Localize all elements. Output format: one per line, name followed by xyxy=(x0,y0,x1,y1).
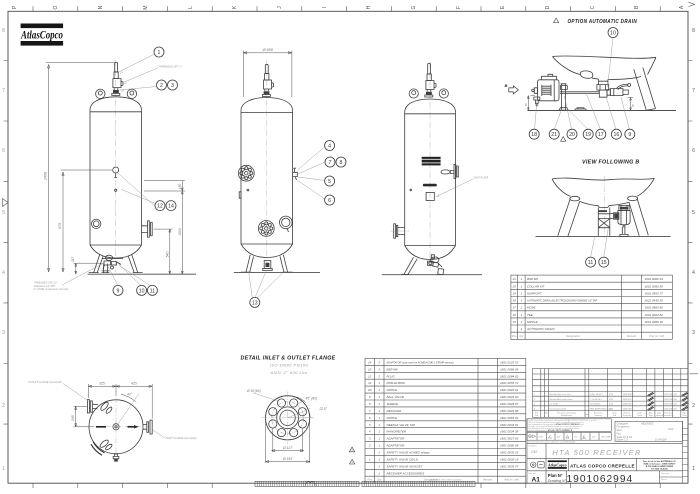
svg-text:Designation: Designation xyxy=(566,334,580,338)
svg-text:Format: Format xyxy=(529,472,536,475)
svg-text:1: 1 xyxy=(692,466,695,472)
svg-text:D: D xyxy=(545,5,551,9)
svg-text:975: 975 xyxy=(58,223,62,229)
svg-text:5: 5 xyxy=(692,210,695,216)
svg-text:4: 4 xyxy=(2,270,5,276)
svg-text:Tel:0320.10.46.46: Tel:0320.10.46.46 xyxy=(651,467,668,470)
svg-text:Approval Dte: Approval Dte xyxy=(661,414,674,417)
svg-text:5: 5 xyxy=(328,179,331,185)
svg-text:DETAIL INLET & OUTLET FLAN: DETAIL INLET & OUTLET FLANGE xyxy=(240,355,335,361)
svg-text:1910: 1910 xyxy=(668,429,674,431)
svg-text:L: L xyxy=(188,6,194,9)
svg-text:5: 5 xyxy=(2,210,5,216)
svg-text:20: 20 xyxy=(569,132,575,138)
svg-text:Remark: Remark xyxy=(627,334,637,338)
svg-text:45° (8X): 45° (8X) xyxy=(306,396,318,400)
svg-text:1601 0029 67: 1601 0029 67 xyxy=(500,402,519,406)
svg-text:1601 0635 18: 1601 0635 18 xyxy=(500,451,519,455)
svg-text:1601 0033 91: 1601 0033 91 xyxy=(500,423,519,427)
svg-text:325: 325 xyxy=(99,381,105,385)
svg-text:Ø 165: Ø 165 xyxy=(282,457,292,461)
svg-text:Tested by: Tested by xyxy=(623,414,633,417)
svg-text:OUTLET FLANGE (see detail): OUTLET FLANGE (see detail) xyxy=(28,381,62,384)
svg-text:Drawn C.D: Drawn C.D xyxy=(617,440,629,442)
svg-text:Sheet: Sheet xyxy=(661,478,667,481)
svg-text:F: F xyxy=(456,6,462,9)
svg-text:Spec: Spec xyxy=(617,430,623,432)
svg-text:Modification: Modification xyxy=(561,414,573,417)
svg-text:MANOMETER: MANOMETER xyxy=(387,430,407,434)
svg-text:BSP M8: BSP M8 xyxy=(527,277,538,281)
svg-text:13: 13 xyxy=(252,300,258,306)
svg-text:HTA 500 RECEIVER: HTA 500 RECEIVER xyxy=(552,448,641,457)
svg-text:ANSI 2" 600 Lbs: ANSI 2" 600 Lbs xyxy=(270,370,308,375)
svg-text:Mounted/Assembly drawn: Mounted/Assembly drawn xyxy=(550,398,574,401)
svg-text:Verfd on: Verfd on xyxy=(623,413,631,415)
svg-text:6: 6 xyxy=(328,198,331,204)
svg-text:SLEEVE: SLEEVE xyxy=(387,402,400,406)
svg-text:A1: A1 xyxy=(532,477,541,484)
svg-text:7: 7 xyxy=(329,160,332,166)
svg-text:1904 5417: 1904 5417 xyxy=(623,407,633,410)
svg-text:3: 3 xyxy=(171,83,174,89)
svg-text:1601 0029 82: 1601 0029 82 xyxy=(645,313,664,317)
svg-text:SAFETY VALVE ACMEG w/tags: SAFETY VALVE ACMEG w/tags xyxy=(387,451,431,455)
svg-text:1601 0855 77: 1601 0855 77 xyxy=(645,291,664,295)
svg-text:1601 0635 57: 1601 0635 57 xyxy=(500,464,519,468)
svg-text:1601 0066 36: 1601 0066 36 xyxy=(645,320,664,324)
svg-text:6: 6 xyxy=(2,148,5,154)
svg-text:AUTOMATIC DRAIN (ELECTRO)220/2: AUTOMATIC DRAIN (ELECTRO)220/240V-50/60H… xyxy=(526,299,598,303)
svg-text:for ACME compressors (see list: for ACME compressors (see list) xyxy=(34,288,69,291)
svg-text:1622 0439 35: 1622 0439 35 xyxy=(645,299,664,303)
svg-text:1601 0029 60: 1601 0029 60 xyxy=(500,395,519,399)
svg-text:2: 2 xyxy=(377,360,380,364)
svg-text:4: 4 xyxy=(328,143,331,149)
svg-text:1904 (5417): 1904 (5417) xyxy=(623,393,634,396)
svg-text:2: 2 xyxy=(377,374,380,378)
svg-text:19.04 GBP: 19.04 GBP xyxy=(655,438,667,441)
svg-text:1601 0055 72: 1601 0055 72 xyxy=(500,381,519,385)
svg-text:T.D 04.04.2: T.D 04.04.2 xyxy=(590,403,601,406)
svg-text:17: 17 xyxy=(598,132,604,138)
svg-text:SAFETY VALVE CE/LD: SAFETY VALVE CE/LD xyxy=(387,458,419,462)
svg-text:HOSE: HOSE xyxy=(527,306,537,310)
svg-text:10: 10 xyxy=(610,30,616,36)
svg-text:21: 21 xyxy=(551,132,557,138)
svg-text:1601 0665 80: 1601 0665 80 xyxy=(645,306,664,310)
svg-text:Part no. (ref): Part no. (ref) xyxy=(650,334,665,338)
svg-text:BSP M8: BSP M8 xyxy=(387,367,398,371)
svg-text:Drwn by: Drwn by xyxy=(594,415,602,417)
svg-text:B: B xyxy=(505,83,508,88)
svg-text:THREADED NPT 1": THREADED NPT 1" xyxy=(159,64,183,68)
svg-text:AtlasCopco: AtlasCopco xyxy=(547,462,567,467)
svg-text:I: I xyxy=(322,7,328,8)
svg-text:M: M xyxy=(143,5,149,9)
svg-text:COLLAR KIT: COLLAR KIT xyxy=(527,284,546,288)
svg-text:Ø 18 (8X): Ø 18 (8X) xyxy=(246,389,261,393)
svg-text:1601 0635 19: 1601 0635 19 xyxy=(500,458,519,462)
svg-text:2490: 2490 xyxy=(44,172,48,181)
svg-text:11: 11 xyxy=(588,260,593,266)
svg-text:Record of: Record of xyxy=(664,413,673,415)
svg-text:1904 5417: 1904 5417 xyxy=(623,403,633,406)
svg-text:16: 16 xyxy=(513,313,517,317)
svg-text:117: 117 xyxy=(71,257,75,262)
svg-text:19: 19 xyxy=(585,132,591,138)
svg-text:N: N xyxy=(98,5,104,9)
svg-text:1601 0066 09: 1601 0066 09 xyxy=(500,367,519,371)
svg-text:1901062994: 1901062994 xyxy=(567,474,634,485)
svg-text:1601 0064 03: 1601 0064 03 xyxy=(500,374,519,378)
svg-text:13: 13 xyxy=(368,367,372,371)
svg-text:7: 7 xyxy=(2,88,5,94)
svg-text:1601 0125 53: 1601 0125 53 xyxy=(500,360,519,364)
svg-text:Drft: Drft xyxy=(613,414,617,417)
svg-text:Partition: Partition xyxy=(529,445,538,448)
svg-text:NIPPLE: NIPPLE xyxy=(387,388,399,392)
svg-text:Based on: Based on xyxy=(594,413,603,415)
svg-text:1601 0627 63: 1601 0627 63 xyxy=(500,437,519,441)
svg-text:425: 425 xyxy=(131,381,137,385)
svg-text:C.Tol 09.04.3: C.Tol 09.04.3 xyxy=(590,398,603,401)
svg-text:AUTOMATIC DRAIN: AUTOMATIC DRAIN xyxy=(526,327,555,331)
svg-text:O: O xyxy=(53,5,59,9)
svg-text:ISO DN80 PN100: ISO DN80 PN100 xyxy=(270,363,309,368)
svg-text:43°: 43° xyxy=(127,392,133,396)
svg-text:U.Dim 16.02.1: U.Dim 16.02.1 xyxy=(590,394,603,396)
svg-text:NEEDLE VALVE TAP: NEEDLE VALVE TAP xyxy=(387,423,416,427)
svg-text:Revision: Revision xyxy=(661,473,670,475)
svg-text:1000: 1000 xyxy=(178,228,182,236)
svg-text:12: 12 xyxy=(157,204,163,210)
svg-text:DATA PLATE: DATA PLATE xyxy=(474,177,489,180)
svg-text:1: 1 xyxy=(534,394,535,396)
svg-text:8: 8 xyxy=(2,28,5,34)
svg-text:NIPPLE: NIPPLE xyxy=(387,416,399,420)
svg-text:C: C xyxy=(590,5,596,9)
svg-text:2: 2 xyxy=(2,403,5,409)
svg-text:OPTION AUTOMATIC DRAIN: OPTION AUTOMATIC DRAIN xyxy=(568,19,638,25)
svg-text:ADAPTATOR (only used for ACME/: ADAPTATOR (only used for ACME/ACME 2 STA… xyxy=(386,361,454,364)
svg-text:150: 150 xyxy=(178,184,182,190)
svg-text:SAFETY VALVE AS/GOST: SAFETY VALVE AS/GOST xyxy=(387,464,424,468)
svg-text:General tolerances unless othe: General tolerances unless otherwise stat… xyxy=(528,441,576,444)
svg-text:1601 0060 69: 1601 0060 69 xyxy=(500,444,519,448)
svg-text:Catalogues: Catalogues xyxy=(617,423,629,426)
svg-text:15: 15 xyxy=(601,260,607,266)
svg-text:RECEIVER ACCESSORIES: RECEIVER ACCESSORIES xyxy=(387,471,425,475)
svg-text:Appr: Appr xyxy=(648,412,654,415)
svg-text:Part no. (ref): Part no. (ref) xyxy=(504,478,519,482)
svg-text:INLET FLANGE (see detail): INLET FLANGE (see detail) xyxy=(166,437,197,440)
svg-text:8: 8 xyxy=(340,160,343,166)
svg-text:17: 17 xyxy=(513,306,517,310)
svg-text:Ø 127: Ø 127 xyxy=(282,446,292,450)
svg-text:G: G xyxy=(411,5,417,9)
svg-text:8: 8 xyxy=(692,28,695,34)
svg-text:1: 1 xyxy=(158,50,161,56)
svg-text:9: 9 xyxy=(117,288,120,294)
svg-text:4: 4 xyxy=(692,270,695,276)
svg-text:Rev.notes description: Rev.notes description xyxy=(557,412,577,415)
svg-text:NIPPLE: NIPPLE xyxy=(527,320,539,324)
svg-text:10: 10 xyxy=(139,288,145,294)
svg-text:3: 3 xyxy=(2,330,5,336)
svg-text:20: 20 xyxy=(512,284,517,288)
svg-text:21: 21 xyxy=(512,277,517,281)
svg-text:ATLAS COPCO CREPELLE: ATLAS COPCO CREPELLE xyxy=(570,464,635,469)
svg-text:Drawing N°: Drawing N° xyxy=(548,479,567,483)
svg-text:1910 1062.94: 1910 1062.94 xyxy=(664,393,677,396)
svg-text:Cd 12/94: Cd 12/94 xyxy=(550,403,559,406)
svg-text:12: 12 xyxy=(368,374,372,378)
svg-text:15: 15 xyxy=(513,320,517,324)
svg-text:10: 10 xyxy=(368,388,372,392)
svg-text:1/10: 1/10 xyxy=(531,450,537,454)
svg-text:11: 11 xyxy=(150,288,155,294)
svg-text:Var.restricted 1/16: Var.restricted 1/16 xyxy=(550,407,567,410)
svg-text:1601 0063 93: 1601 0063 93 xyxy=(500,416,519,420)
svg-text:14: 14 xyxy=(368,360,372,364)
svg-text:For approval: For approval xyxy=(617,427,630,429)
svg-text:1904 5417: 1904 5417 xyxy=(623,398,633,401)
svg-text:PLUG: PLUG xyxy=(387,374,396,378)
svg-text:2: 2 xyxy=(692,403,695,409)
svg-text:Pos: Pos xyxy=(512,334,517,338)
svg-text:2: 2 xyxy=(160,83,163,89)
svg-text:Scale 1/7.5-1/4: Scale 1/7.5-1/4 xyxy=(617,436,633,439)
svg-text:11: 11 xyxy=(368,381,371,385)
svg-text:ADAPTATOR: ADAPTATOR xyxy=(386,444,406,448)
svg-text:RELEASED: RELEASED xyxy=(641,423,654,426)
svg-text:1: 1 xyxy=(2,466,5,472)
svg-text:1910 1062.94: 1910 1062.94 xyxy=(664,407,677,410)
svg-text:9: 9 xyxy=(628,132,631,138)
svg-text:1910 1062.94: 1910 1062.94 xyxy=(664,403,677,406)
svg-text:245: 245 xyxy=(71,415,75,422)
svg-text:1601 0066 39: 1601 0066 39 xyxy=(645,284,664,288)
svg-text:written authorization of ATLAS: written authorization of ATLAS COPCO CRE… xyxy=(528,429,573,432)
svg-text:19: 19 xyxy=(513,291,517,295)
svg-text:Plan N°: Plan N° xyxy=(548,473,563,478)
svg-text:SUPPORT: SUPPORT xyxy=(527,291,543,295)
svg-text:1601 0029 91: 1601 0029 91 xyxy=(500,388,519,392)
svg-text:3: 3 xyxy=(692,330,695,336)
svg-text:22.5°: 22.5° xyxy=(319,407,328,411)
svg-text:VIEW FOLLOWING B: VIEW FOLLOWING B xyxy=(582,160,639,166)
svg-text:Remark: Remark xyxy=(483,478,493,482)
svg-text:1601 0066 34: 1601 0066 34 xyxy=(645,277,664,281)
svg-text:ISO 2768: ISO 2768 xyxy=(601,436,611,438)
svg-text:18: 18 xyxy=(513,299,517,303)
svg-text:Qty: Qty xyxy=(519,334,524,338)
svg-text:ADAPTATOR: ADAPTATOR xyxy=(386,437,406,441)
svg-text:BALL VALVE: BALL VALVE xyxy=(387,395,405,399)
svg-text:PIPE ELBOW: PIPE ELBOW xyxy=(387,381,407,385)
svg-text:1910 1062.94: 1910 1062.94 xyxy=(664,398,677,401)
svg-text:1601 0029 68: 1601 0029 68 xyxy=(500,409,519,413)
svg-text:Pos: Pos xyxy=(367,478,372,482)
svg-text:2: 2 xyxy=(377,367,380,371)
svg-text:Mod.No./Qty. level used: Mod.No./Qty. level used xyxy=(550,393,572,396)
svg-text:2: 2 xyxy=(368,444,371,448)
svg-text:16: 16 xyxy=(614,132,620,138)
svg-text:540: 540 xyxy=(165,252,169,258)
svg-text:Designation: Designation xyxy=(424,478,438,482)
svg-text:Qty: Qty xyxy=(377,478,382,482)
svg-text:H: H xyxy=(366,5,372,9)
svg-text:1601 0034 38: 1601 0034 38 xyxy=(500,430,519,434)
svg-text:18: 18 xyxy=(531,132,537,138)
svg-text:6: 6 xyxy=(692,148,695,154)
svg-text:14: 14 xyxy=(168,204,174,210)
svg-text:REDUCER: REDUCER xyxy=(387,409,403,413)
svg-text:AtlasCopco: AtlasCopco xyxy=(20,30,63,42)
svg-text:Ø 600: Ø 600 xyxy=(262,48,274,52)
svg-text:7: 7 xyxy=(692,88,695,94)
svg-text:TEE: TEE xyxy=(527,313,534,317)
